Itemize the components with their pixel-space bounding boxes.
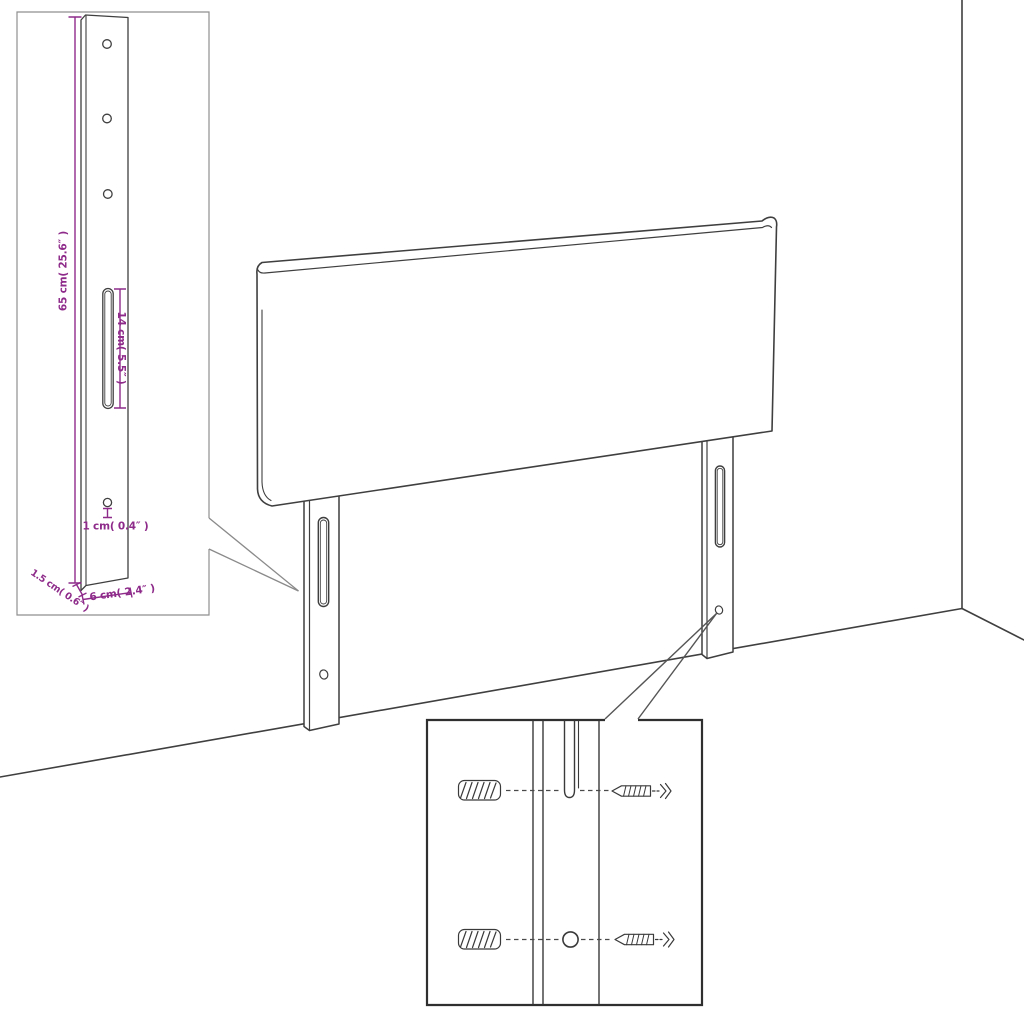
leg-detail-panel: 65 cm( 25.6″ ) 14 cm( 5.5″ ) 1 cm( 0.4″ … [17, 12, 209, 615]
dimension-height-label: 65 cm( 25.6″ ) [58, 231, 70, 311]
dimension-slot-length-label: 14 cm( 5.5″ ) [115, 311, 127, 384]
leg-detail-drawing [81, 15, 128, 591]
diagram-canvas: 65 cm( 25.6″ ) 14 cm( 5.5″ ) 1 cm( 0.4″ … [0, 0, 1024, 1024]
mounting-detail-panel [427, 720, 702, 1005]
dimension-hole-diameter-label: 1 cm( 0.4″ ) [83, 521, 149, 533]
product-diagram: 65 cm( 25.6″ ) 14 cm( 5.5″ ) 1 cm( 0.4″ … [0, 0, 1024, 1024]
headboard-left-leg [304, 484, 339, 731]
